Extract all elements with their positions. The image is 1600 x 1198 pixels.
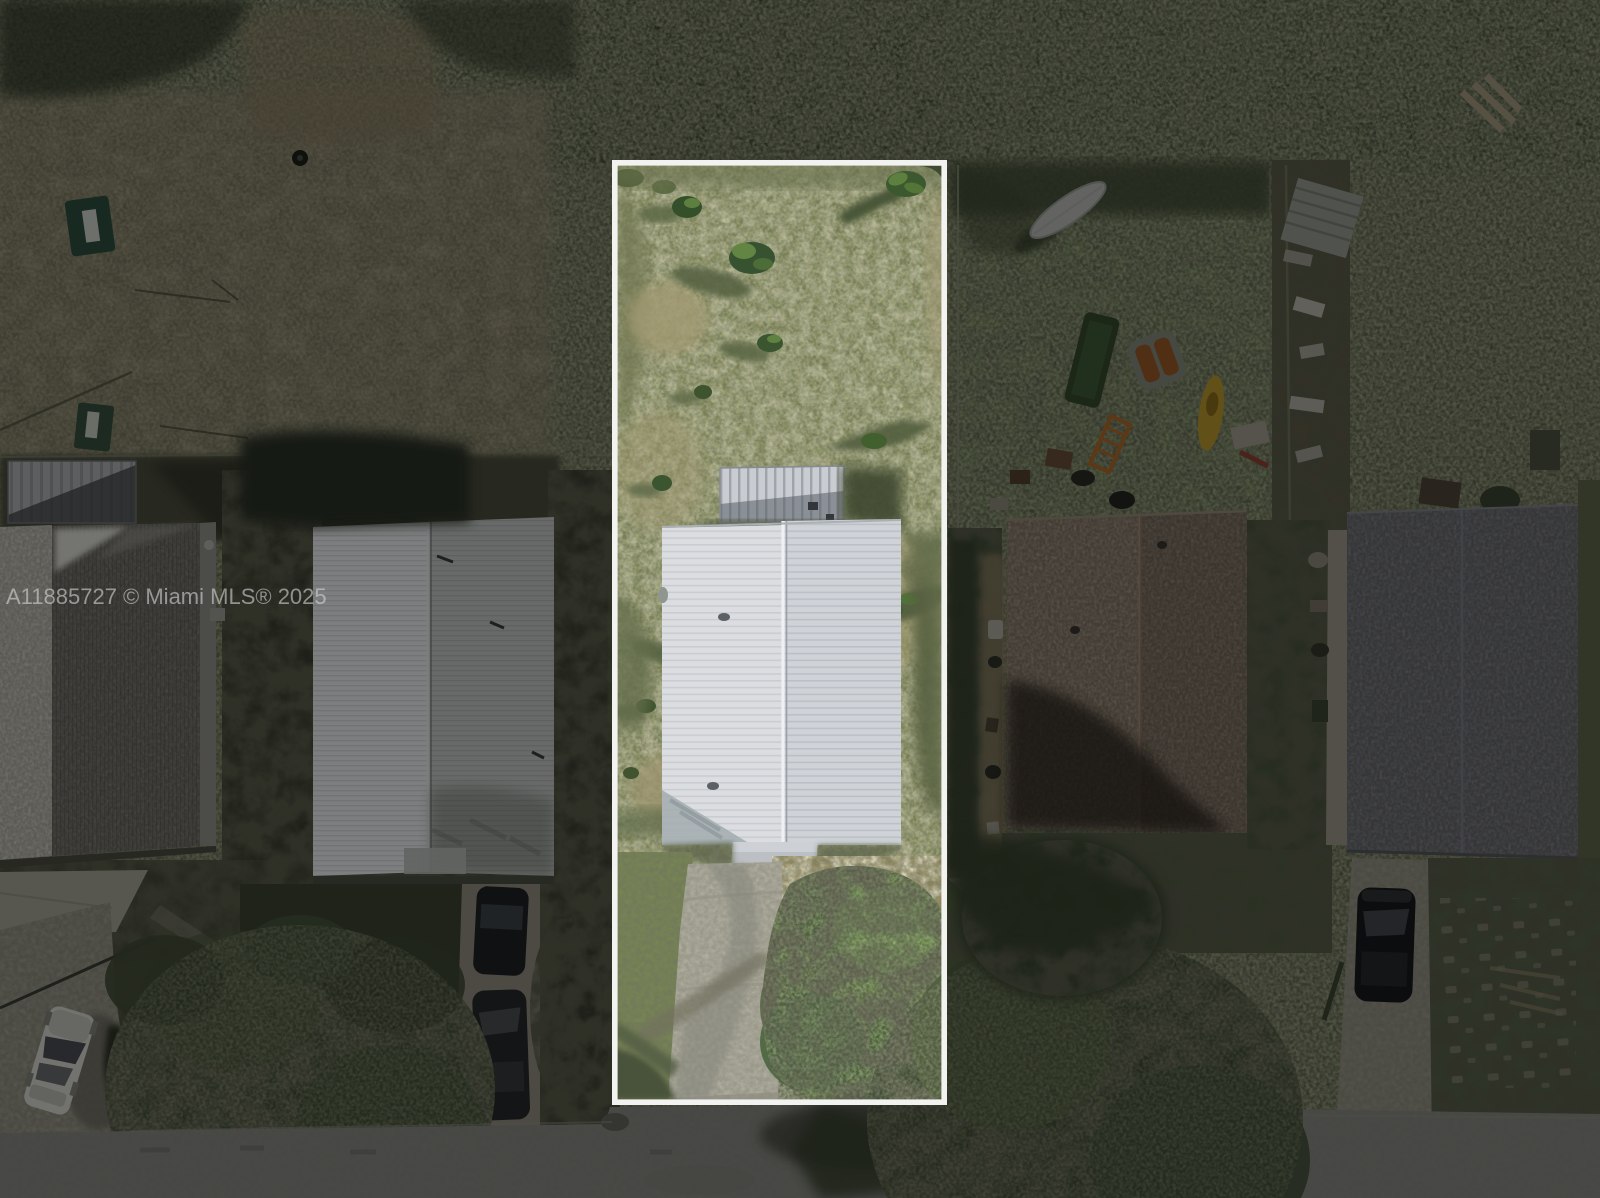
svg-text:A11885727 © Miami MLS® 2025: A11885727 © Miami MLS® 2025 — [6, 584, 327, 609]
